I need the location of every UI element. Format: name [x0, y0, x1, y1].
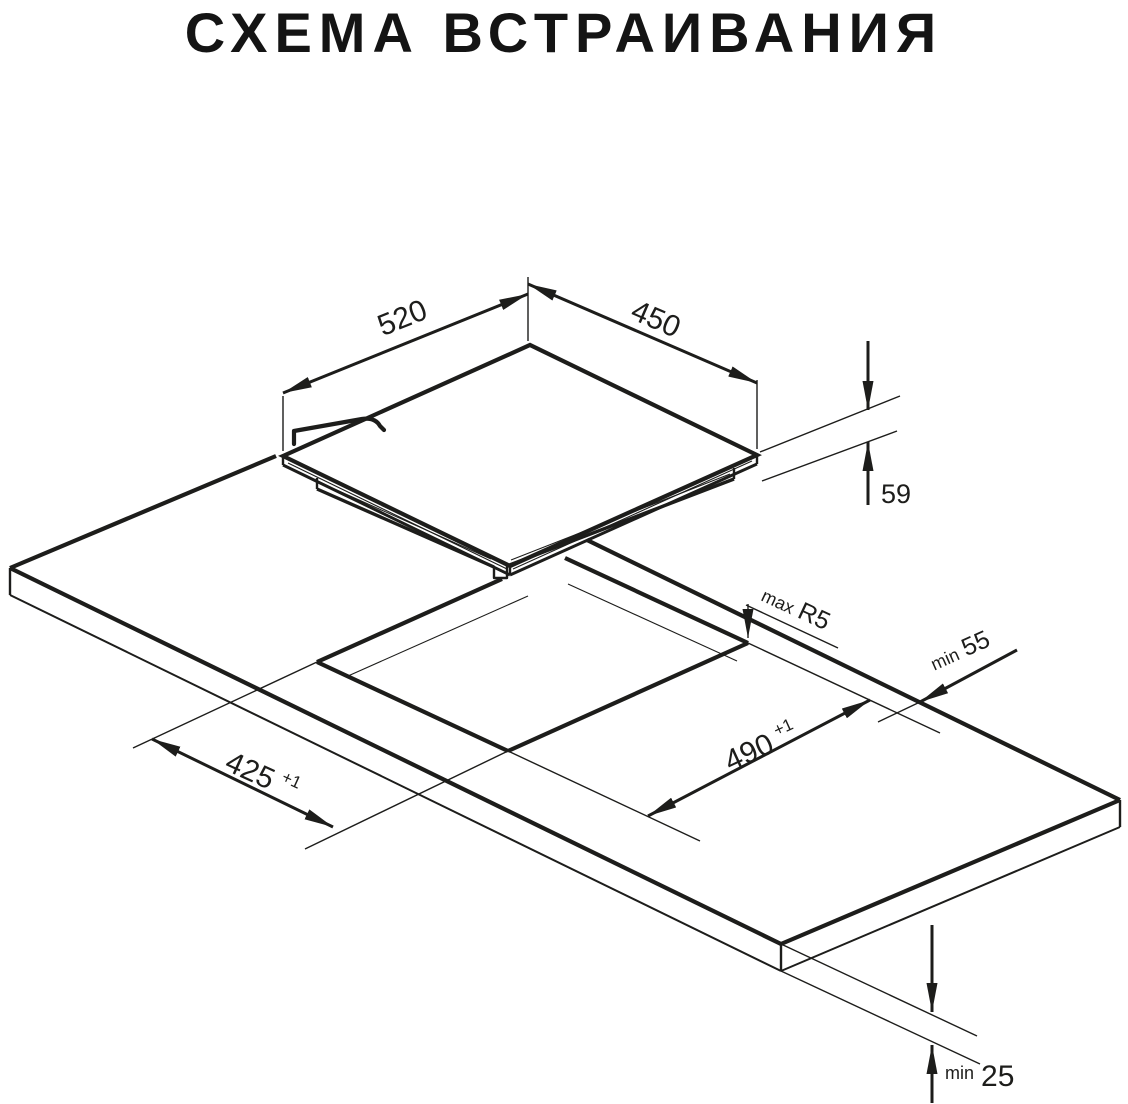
dim-min55-line-tail	[878, 702, 920, 722]
dim-hob-height: 59	[760, 341, 911, 509]
hob-body-bottom-right-edge	[507, 479, 734, 566]
dim-425-label: 425+1	[220, 744, 304, 808]
hob	[283, 345, 757, 578]
dim-490-ext-left	[508, 751, 700, 841]
worktop-bottom-front-right-edge	[781, 827, 1120, 971]
worktop-bottom-front-left-edge	[10, 595, 781, 971]
cutout-front-right-edge	[508, 643, 748, 751]
dim-490-label: 490+1	[719, 715, 803, 779]
cutout-rear-left-edge	[317, 579, 502, 662]
dim-min25-ext-top	[781, 944, 977, 1036]
dim-min25-ext-bottom	[781, 971, 980, 1064]
installation-scheme-page: СХЕМА ВСТРАИВАНИЯ	[0, 0, 1128, 1104]
dim-59-ext-top	[760, 396, 900, 452]
worktop-rear-right-edge	[587, 540, 1120, 800]
dim-425-ext-right	[305, 751, 508, 849]
hob-glass-underside-left-line	[288, 463, 507, 569]
worktop-front-right-edge	[781, 800, 1120, 944]
dim-worktop-thickness: min25	[781, 925, 1014, 1103]
hob-glass-top-face	[283, 345, 757, 566]
dim-cutout-width: 490+1	[508, 643, 940, 841]
hob-body-bottom-left-edge	[317, 489, 494, 567]
hob-body-top-left-line	[321, 483, 491, 559]
cutout-rear-right-edge	[565, 558, 748, 643]
dim-59-label: 59	[881, 479, 911, 509]
worktop-outline	[10, 419, 1120, 971]
dim-450-label: 450	[626, 294, 685, 344]
dim-cutout-depth: 425+1	[133, 662, 508, 849]
installation-diagram: 520 450 59 maxR5 min55	[0, 0, 1128, 1104]
worktop-rear-left-edge	[10, 456, 276, 568]
hob-glass-underside-right-line	[513, 461, 752, 569]
dim-min25-label: min25	[945, 1060, 1014, 1093]
worktop-front-left-edge	[10, 568, 781, 944]
dim-59-ext-bottom	[762, 431, 897, 481]
dim-rear-clearance: min55	[878, 625, 1017, 722]
dim-hob-depth: 450	[528, 284, 757, 449]
cutout-front-left-edge	[317, 662, 508, 751]
cutout-inner-right-edge	[568, 584, 737, 661]
hob-body-top-right-line	[511, 474, 730, 560]
hob-glass-bottom-right-edge	[510, 464, 757, 575]
